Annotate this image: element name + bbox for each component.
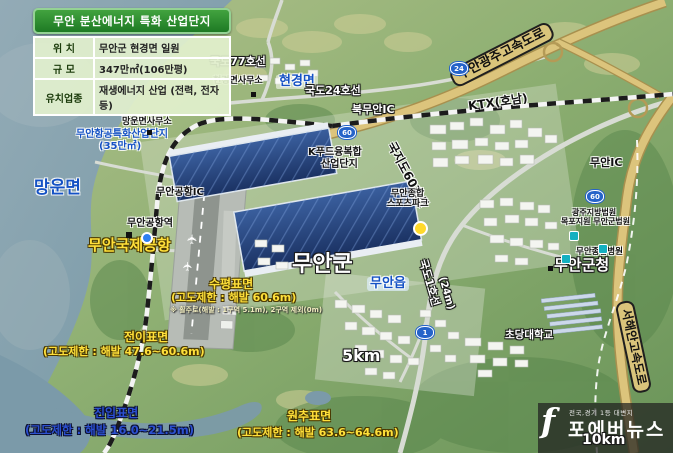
station-square-marker [126, 232, 132, 238]
muan-international-airport-label: 무안국제공항 [88, 238, 171, 254]
info-value: 재생에너지 산업 (전력, 전자 등) [94, 79, 230, 115]
county-office-marker [548, 266, 553, 271]
transition-surface-limit: (고도제한 : 해발 47.6~60.6m) [43, 346, 205, 358]
muan-airport-ic-label: 무안공항IC [156, 188, 204, 199]
map-canvas: ✈ ✈ [0, 0, 673, 453]
info-row-industry: 유치업종 재생에너지 산업 (전력, 전자 등) [34, 79, 230, 115]
aviation-complex-size-label: (35만㎡) [99, 142, 141, 153]
scale-5km-label: 5km [342, 348, 380, 365]
horizontal-surface-title: 수평표면 [209, 278, 253, 291]
route-shield-60a: 60 [338, 126, 356, 139]
kfood-complex-label-line2: 산업단지 [321, 160, 358, 171]
mangun-office-marker [147, 130, 152, 135]
chodang-university-label: 초당대학교 [505, 330, 553, 341]
horizontal-surface-note: ※ 활주로(해발 : 1구역 5.1m), 2구역 제외(0m) [170, 307, 322, 314]
poi-marker-icon [569, 231, 579, 241]
route-shield-24: 24 [450, 62, 468, 75]
aviation-complex-label: 무안항공특화산업단지 [76, 130, 168, 141]
info-label: 유치업종 [34, 79, 94, 115]
mangun-myeon-label: 망운면 [34, 180, 81, 198]
info-row-size: 규 모 347만㎡(106만평) [34, 58, 230, 79]
conical-surface-limit: (고도제한 : 해발 63.6~64.6m) [237, 427, 399, 439]
landmark-circle-icon [413, 221, 428, 236]
scale-10km-label: 10km [582, 433, 625, 448]
district-court-label-line2: 목포지원 무안군법원 [561, 218, 630, 226]
ktx-honam-label: KTX(호남) [467, 92, 528, 113]
info-label: 위 치 [34, 37, 94, 58]
muan-gwangju-expressway-label: 무안광주고속도로 [448, 20, 556, 88]
mangun-office-label: 망운면사무소 [122, 118, 172, 127]
conical-surface-title: 원추표면 [287, 410, 331, 423]
info-label: 규 모 [34, 58, 94, 79]
poi-marker-icon [598, 244, 608, 254]
seohaean-expressway-label: 서해안고속도로 [615, 299, 653, 394]
hyeongyeong-office-marker [251, 92, 256, 97]
poi-marker-icon [561, 254, 571, 264]
info-value: 347만㎡(106만평) [94, 58, 230, 79]
muan-ic-label: 무안IC [590, 157, 622, 169]
sports-park-label-line2: 스포츠파크 [387, 200, 428, 209]
route-shield-1: 1 [416, 326, 434, 339]
horizontal-surface-limit: (고도제한 : 해발 60.6m) [171, 292, 296, 304]
project-info-box: 무안 분산에너지 특화 산업단지 위 치 무안군 현경면 일원 규 모 347만… [33, 8, 231, 116]
bukmuan-ic-label: 북무안IC [352, 104, 395, 116]
road-24-label: 국도24호선 [305, 85, 361, 97]
approach-surface-title: 진입표면 [94, 407, 138, 420]
info-value: 무안군 현경면 일원 [94, 37, 230, 58]
info-box-table: 위 치 무안군 현경면 일원 규 모 347만㎡(106만평) 유치업종 재생에… [33, 36, 231, 116]
muan-eup-label: 무안읍 [367, 277, 409, 291]
approach-surface-limit: (고도제한 : 해발 16.0~21.5m) [25, 424, 194, 436]
route-shield-60b: 60 [586, 190, 604, 203]
info-box-title: 무안 분산에너지 특화 산업단지 [33, 8, 231, 34]
muan-airport-station-label: 무안공항역 [127, 219, 173, 230]
transition-surface-title: 전이표면 [124, 331, 168, 344]
kfood-complex-label-line1: K푸드융복합 [308, 148, 362, 159]
muan-gun-label: 무안군 [292, 253, 353, 276]
info-row-location: 위 치 무안군 현경면 일원 [34, 37, 230, 58]
ktx-station-icon [141, 232, 153, 244]
